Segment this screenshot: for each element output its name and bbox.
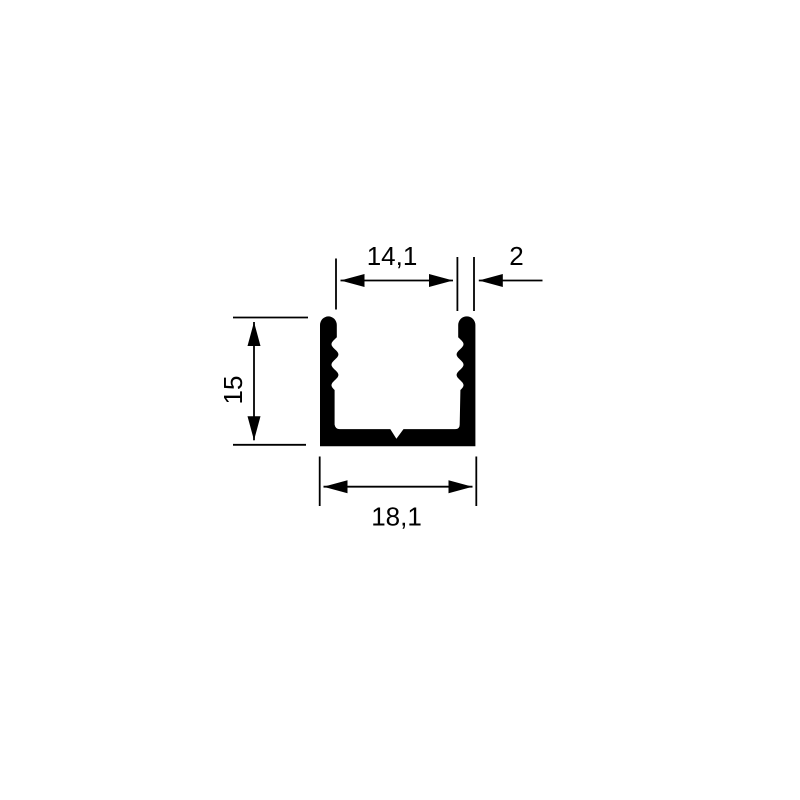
svg-text:2: 2 [509, 241, 523, 271]
svg-text:14,1: 14,1 [367, 241, 418, 271]
svg-text:18,1: 18,1 [371, 502, 422, 532]
svg-text:15: 15 [218, 376, 248, 405]
